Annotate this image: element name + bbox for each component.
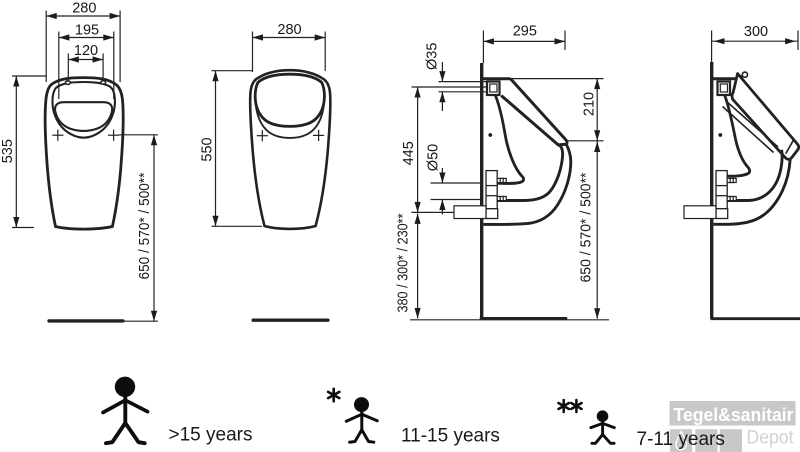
svg-text:535: 535 — [0, 139, 16, 163]
svg-text:11-15 years: 11-15 years — [401, 425, 500, 446]
svg-text:445: 445 — [401, 141, 417, 165]
svg-text:195: 195 — [75, 23, 99, 39]
svg-text:300: 300 — [744, 24, 768, 40]
svg-text:550: 550 — [200, 137, 216, 161]
svg-text:210: 210 — [581, 92, 597, 116]
svg-text:Tegel&sanitair: Tegel&sanitair — [674, 404, 794, 425]
svg-text:650 / 570* / 500**: 650 / 570* / 500** — [578, 172, 594, 282]
svg-text:280: 280 — [277, 22, 301, 38]
svg-text:280: 280 — [72, 1, 96, 17]
svg-text:Ø35: Ø35 — [425, 43, 441, 70]
svg-text:>15 years: >15 years — [169, 425, 253, 446]
svg-text:295: 295 — [513, 24, 537, 40]
svg-text:380 / 300* / 230**: 380 / 300* / 230** — [395, 213, 411, 312]
svg-text:7-11 years: 7-11 years — [637, 429, 725, 450]
svg-text:Depot: Depot — [747, 428, 795, 449]
svg-text:120: 120 — [74, 43, 98, 59]
svg-text:650 / 570* / 500**: 650 / 570* / 500** — [137, 172, 153, 279]
svg-text:Ø50: Ø50 — [426, 144, 442, 171]
